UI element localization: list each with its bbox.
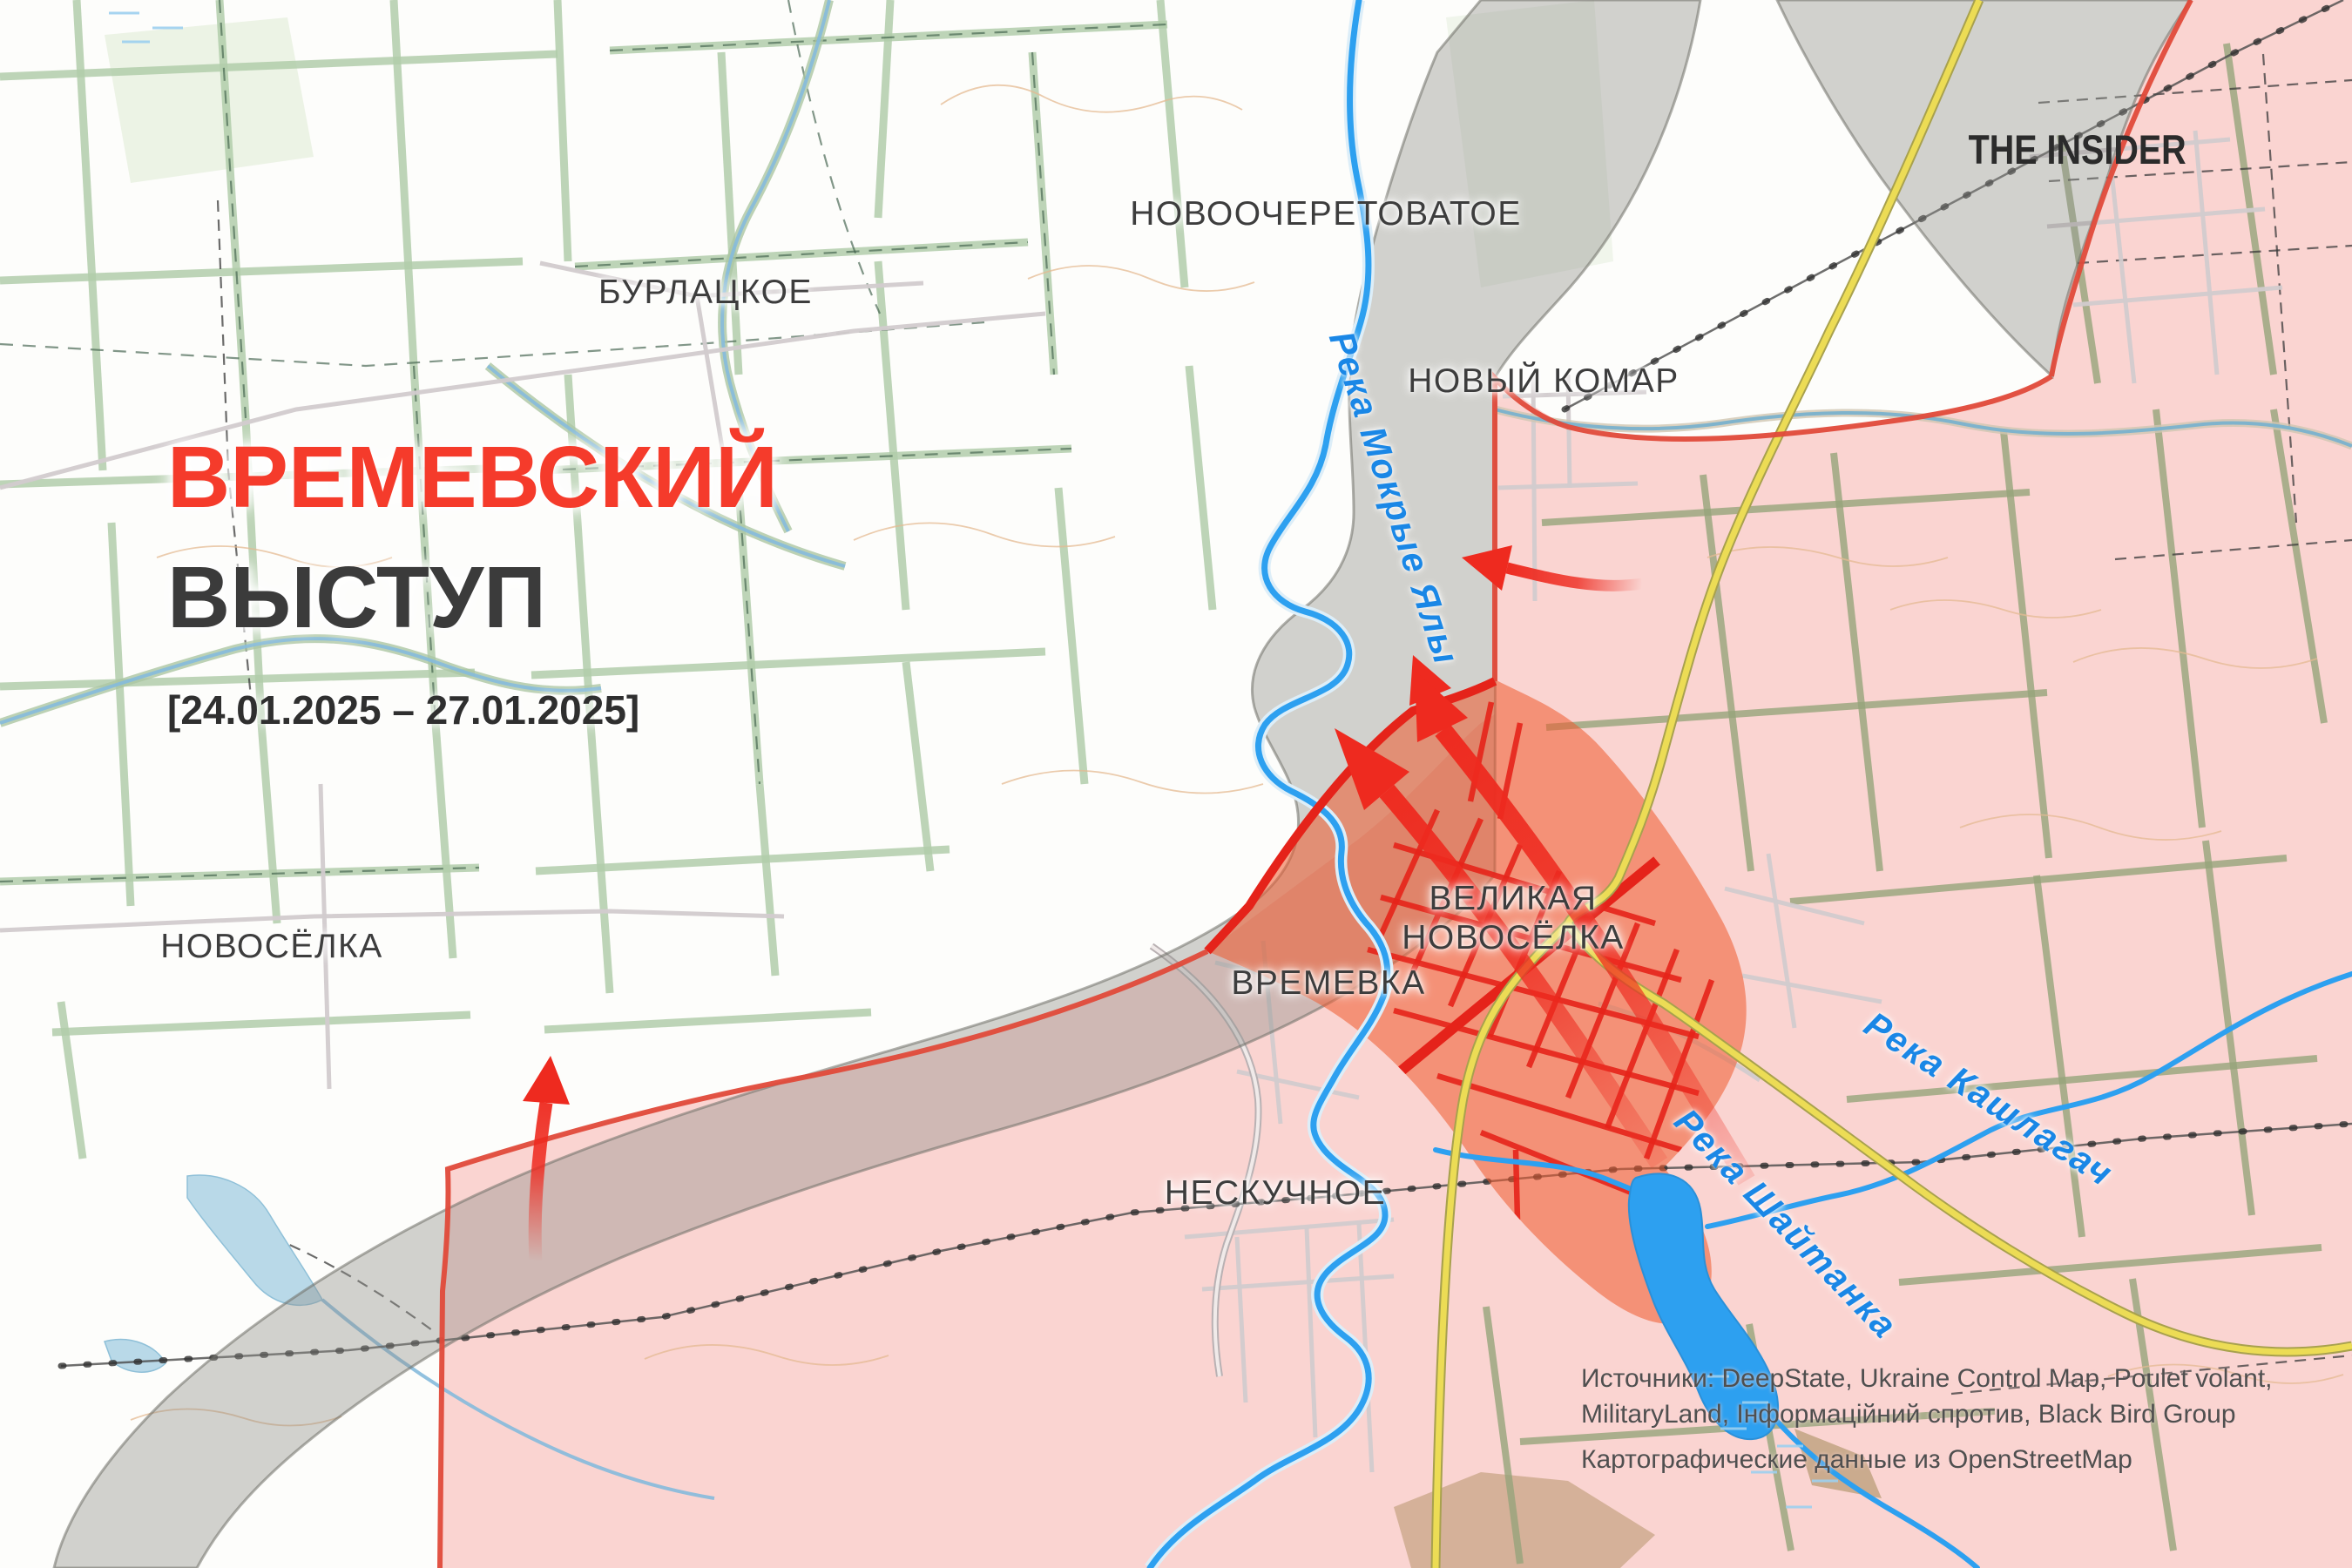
credits-sources-line1: Источники: DeepState, Ukraine Control Ma…	[1581, 1361, 2273, 1396]
place-label-velikaya-novosyolka: ВЕЛИКАЯ НОВОСЁЛКА	[1402, 879, 1625, 957]
lake	[187, 1175, 322, 1305]
place-label-vremevka: ВРЕМЕВКА	[1231, 964, 1425, 1003]
place-label-novoocheretovatoe: НОВООЧЕРЕТОВАТОЕ	[1130, 195, 1522, 233]
map-canvas	[0, 0, 2352, 1568]
credits: Источники: DeepState, Ukraine Control Ma…	[1581, 1361, 2273, 1477]
place-label-novosyolka: НОВОСЁЛКА	[160, 928, 383, 966]
credits-map-data: Картографические данные из OpenStreetMap	[1581, 1442, 2273, 1477]
place-label-velikaya-novosyolka-line1: ВЕЛИКАЯ	[1402, 879, 1625, 918]
place-label-velikaya-novosyolka-line2: НОВОСЁЛКА	[1402, 918, 1625, 957]
place-label-neskuchnoe: НЕСКУЧНОЕ	[1165, 1174, 1386, 1213]
place-label-burlatskoe: БУРЛАЦКОЕ	[598, 274, 813, 312]
publisher-logo: THE INSIDER	[1969, 125, 2186, 173]
place-label-novy-komar: НОВЫЙ КОМАР	[1408, 362, 1680, 401]
map-date-range: [24.01.2025 – 27.01.2025]	[167, 686, 639, 733]
map-title: ВЫСТУП	[167, 554, 546, 641]
map-title-accent: ВРЕМЕВСКИЙ	[167, 434, 778, 521]
map: ВРЕМЕВСКИЙ ВЫСТУП [24.01.2025 – 27.01.20…	[0, 0, 2352, 1568]
credits-sources-line2: MilitaryLand, Інформаційний спротив, Bla…	[1581, 1396, 2273, 1432]
